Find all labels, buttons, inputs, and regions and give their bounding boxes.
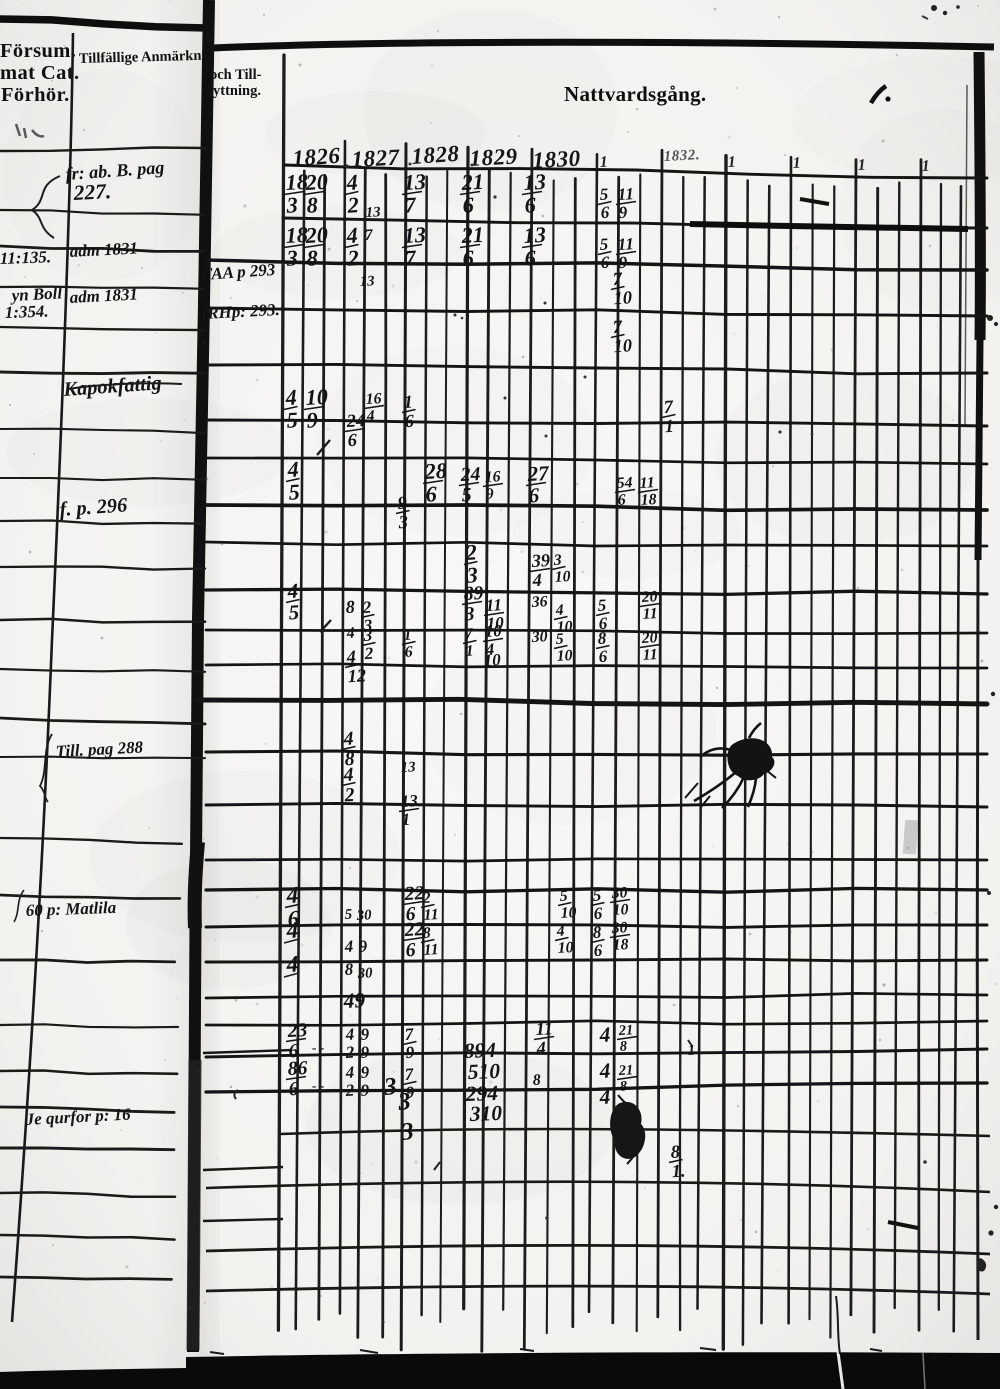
- svg-text:4: 4: [598, 1058, 611, 1083]
- svg-text:1: 1: [401, 810, 410, 829]
- svg-text:3: 3: [552, 552, 562, 569]
- svg-text:11: 11: [423, 941, 439, 959]
- svg-text:30: 30: [610, 919, 628, 937]
- svg-text:49: 49: [342, 988, 366, 1013]
- svg-text:3: 3: [285, 245, 298, 271]
- svg-text:8: 8: [306, 192, 318, 218]
- svg-text:11: 11: [642, 646, 658, 664]
- svg-text:1828: 1828: [411, 141, 461, 169]
- svg-text:13: 13: [365, 204, 381, 221]
- svg-text:8: 8: [532, 1072, 541, 1089]
- svg-text:1:354.: 1:354.: [4, 301, 48, 322]
- svg-text:Försum.: Försum.: [0, 40, 76, 62]
- svg-text:6: 6: [404, 644, 413, 661]
- svg-text:16: 16: [365, 390, 382, 408]
- svg-text:10: 10: [554, 568, 571, 586]
- svg-text:9: 9: [360, 1063, 370, 1082]
- svg-text:1: 1: [921, 158, 930, 175]
- svg-text:2: 2: [344, 1043, 355, 1062]
- svg-text:mat Cat.: mat Cat.: [0, 62, 79, 84]
- svg-text:6: 6: [593, 904, 603, 923]
- svg-text:18: 18: [640, 491, 657, 509]
- svg-text:3: 3: [382, 1073, 398, 1101]
- svg-text:9: 9: [405, 1043, 415, 1062]
- svg-text:8: 8: [592, 923, 602, 942]
- svg-text:6: 6: [617, 492, 626, 509]
- svg-text:4: 4: [555, 923, 565, 940]
- svg-text:6: 6: [524, 192, 537, 218]
- svg-text:2: 2: [363, 644, 374, 663]
- svg-text:227.: 227.: [72, 179, 112, 205]
- svg-text:13: 13: [523, 222, 547, 248]
- svg-text:10: 10: [560, 904, 577, 922]
- svg-text:1: 1: [792, 155, 801, 172]
- svg-text:60 p: Matlila: 60 p: Matlila: [25, 898, 116, 920]
- svg-text:5: 5: [597, 596, 607, 615]
- svg-text:Nattvardsgång.: Nattvardsgång.: [564, 82, 706, 106]
- svg-text:2: 2: [421, 890, 431, 907]
- svg-text:11: 11: [535, 1018, 553, 1039]
- svg-text:5: 5: [592, 886, 602, 905]
- svg-text:8: 8: [422, 925, 431, 942]
- svg-text:2: 2: [346, 245, 359, 271]
- svg-text:6: 6: [593, 941, 603, 960]
- svg-text:6: 6: [425, 481, 438, 507]
- svg-text:7: 7: [404, 245, 417, 271]
- svg-text:11: 11: [423, 906, 439, 924]
- svg-text:5: 5: [555, 631, 564, 648]
- svg-text:10: 10: [613, 287, 632, 308]
- svg-text:11: 11: [642, 605, 658, 623]
- svg-text:4: 4: [535, 1038, 546, 1059]
- svg-text:2: 2: [343, 784, 355, 807]
- svg-text:10: 10: [556, 647, 573, 665]
- svg-text:10: 10: [305, 384, 329, 410]
- svg-text:30: 30: [610, 884, 628, 902]
- svg-text:9: 9: [358, 937, 368, 956]
- svg-text:4: 4: [344, 1025, 354, 1044]
- svg-text:8: 8: [619, 1038, 627, 1054]
- svg-text:6: 6: [600, 253, 610, 272]
- svg-text:4: 4: [344, 1063, 354, 1082]
- svg-text:5: 5: [461, 484, 472, 506]
- svg-text:6: 6: [462, 192, 475, 218]
- svg-text:6: 6: [528, 483, 540, 508]
- svg-text:13: 13: [400, 759, 416, 776]
- svg-text:4: 4: [345, 647, 356, 668]
- svg-text:3: 3: [399, 1118, 415, 1146]
- svg-text:3: 3: [362, 626, 373, 645]
- svg-text:16: 16: [484, 468, 501, 486]
- svg-text:6: 6: [598, 647, 608, 666]
- svg-text:8: 8: [597, 629, 607, 648]
- svg-text:11: 11: [617, 234, 634, 254]
- svg-text:5: 5: [344, 907, 352, 923]
- svg-text:4: 4: [531, 570, 542, 591]
- svg-text:39: 39: [530, 550, 550, 571]
- svg-text:36: 36: [530, 593, 548, 611]
- svg-text:4: 4: [343, 937, 353, 956]
- svg-text:3: 3: [285, 192, 298, 218]
- svg-text:4: 4: [598, 1022, 611, 1047]
- svg-text:9: 9: [360, 1043, 370, 1062]
- svg-text:Förhör.: Förhör.: [1, 84, 70, 106]
- svg-text:18: 18: [612, 936, 629, 954]
- svg-text:10: 10: [483, 650, 501, 670]
- svg-text:1826: 1826: [292, 143, 342, 171]
- svg-text:10: 10: [613, 335, 632, 356]
- svg-text:1832.: 1832.: [663, 147, 700, 165]
- svg-text:yttning.: yttning.: [213, 83, 261, 99]
- svg-text:8: 8: [670, 1142, 680, 1162]
- svg-text:1.: 1.: [671, 1161, 686, 1182]
- svg-text:8: 8: [306, 245, 318, 271]
- svg-text:5: 5: [288, 600, 300, 625]
- svg-text:54: 54: [616, 474, 633, 492]
- svg-text:adm 1831: adm 1831: [69, 238, 138, 261]
- svg-text:- -: - -: [312, 1040, 325, 1055]
- svg-text:13: 13: [523, 169, 547, 195]
- svg-text:5: 5: [559, 888, 568, 905]
- svg-text:5: 5: [599, 185, 609, 204]
- svg-text:7: 7: [404, 192, 417, 218]
- svg-text:30: 30: [356, 965, 373, 982]
- svg-text:9: 9: [306, 407, 318, 433]
- svg-text:21: 21: [460, 222, 485, 248]
- svg-text:1: 1: [465, 643, 474, 660]
- svg-text:21: 21: [617, 1062, 633, 1079]
- svg-text:1: 1: [727, 154, 736, 171]
- svg-text:3: 3: [463, 603, 475, 626]
- svg-text:adm 1831: adm 1831: [69, 284, 138, 307]
- svg-text:3: 3: [396, 1088, 412, 1116]
- svg-text:13: 13: [400, 791, 418, 811]
- svg-text:10: 10: [557, 939, 574, 957]
- svg-text:och Till-: och Till-: [210, 67, 262, 83]
- svg-text:3: 3: [397, 512, 408, 533]
- svg-text:20: 20: [304, 222, 329, 248]
- svg-text:9: 9: [360, 1025, 370, 1044]
- svg-text:2: 2: [361, 598, 372, 617]
- svg-text:1: 1: [403, 392, 413, 412]
- svg-text:11:135.: 11:135.: [0, 247, 51, 268]
- svg-text:5: 5: [288, 479, 300, 505]
- svg-text:4: 4: [345, 625, 355, 642]
- svg-text:1: 1: [403, 627, 412, 644]
- svg-text:13: 13: [359, 273, 375, 290]
- svg-text:9: 9: [485, 486, 494, 503]
- svg-text:6: 6: [600, 203, 610, 222]
- svg-text:8: 8: [345, 597, 355, 617]
- svg-text:1827: 1827: [351, 144, 401, 172]
- svg-text:5: 5: [599, 235, 609, 254]
- svg-text:1: 1: [664, 416, 674, 436]
- svg-text:- -: - -: [312, 1078, 325, 1093]
- svg-text:9: 9: [397, 493, 407, 513]
- svg-text:1829: 1829: [469, 144, 518, 171]
- svg-text:4: 4: [365, 408, 375, 425]
- svg-text:6: 6: [288, 1078, 299, 1100]
- svg-text:9: 9: [360, 1081, 370, 1100]
- svg-text:30: 30: [530, 628, 548, 646]
- svg-text:9: 9: [618, 203, 628, 222]
- svg-text:20: 20: [640, 588, 658, 606]
- svg-text:310: 310: [468, 1101, 502, 1126]
- svg-text:24: 24: [345, 410, 365, 431]
- svg-text:28: 28: [423, 458, 448, 484]
- svg-text:30: 30: [355, 907, 372, 924]
- svg-text:11: 11: [639, 474, 655, 492]
- svg-text:21: 21: [617, 1022, 633, 1039]
- svg-text:20: 20: [304, 169, 329, 195]
- svg-text:10: 10: [612, 901, 629, 919]
- svg-text:5: 5: [286, 407, 298, 433]
- svg-text:4: 4: [598, 1084, 611, 1109]
- svg-text:12: 12: [347, 665, 366, 686]
- svg-text:1: 1: [857, 157, 866, 174]
- svg-text:2: 2: [344, 1081, 355, 1100]
- svg-text:6: 6: [405, 939, 416, 961]
- svg-text:11: 11: [617, 184, 634, 204]
- svg-text:4: 4: [554, 602, 564, 619]
- svg-text:1: 1: [599, 154, 608, 171]
- svg-text:8: 8: [344, 960, 354, 979]
- svg-text:11: 11: [485, 595, 502, 615]
- svg-text:6: 6: [462, 245, 475, 271]
- svg-text:13: 13: [403, 222, 427, 248]
- svg-text:13: 13: [403, 169, 427, 195]
- svg-text:2: 2: [346, 192, 359, 218]
- svg-text:10: 10: [484, 621, 502, 641]
- svg-text:8: 8: [619, 1078, 627, 1094]
- svg-text:20: 20: [640, 629, 658, 647]
- svg-text:6: 6: [524, 245, 537, 271]
